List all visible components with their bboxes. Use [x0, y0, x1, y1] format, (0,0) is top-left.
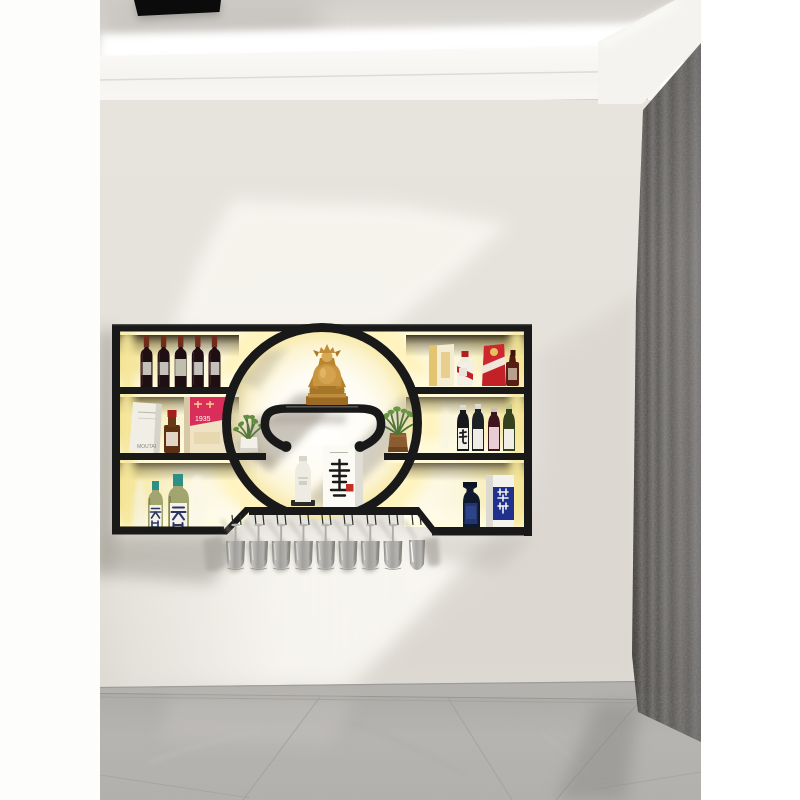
svg-text:MOUTAI: MOUTAI [137, 444, 156, 450]
svg-text:1935: 1935 [195, 416, 211, 423]
